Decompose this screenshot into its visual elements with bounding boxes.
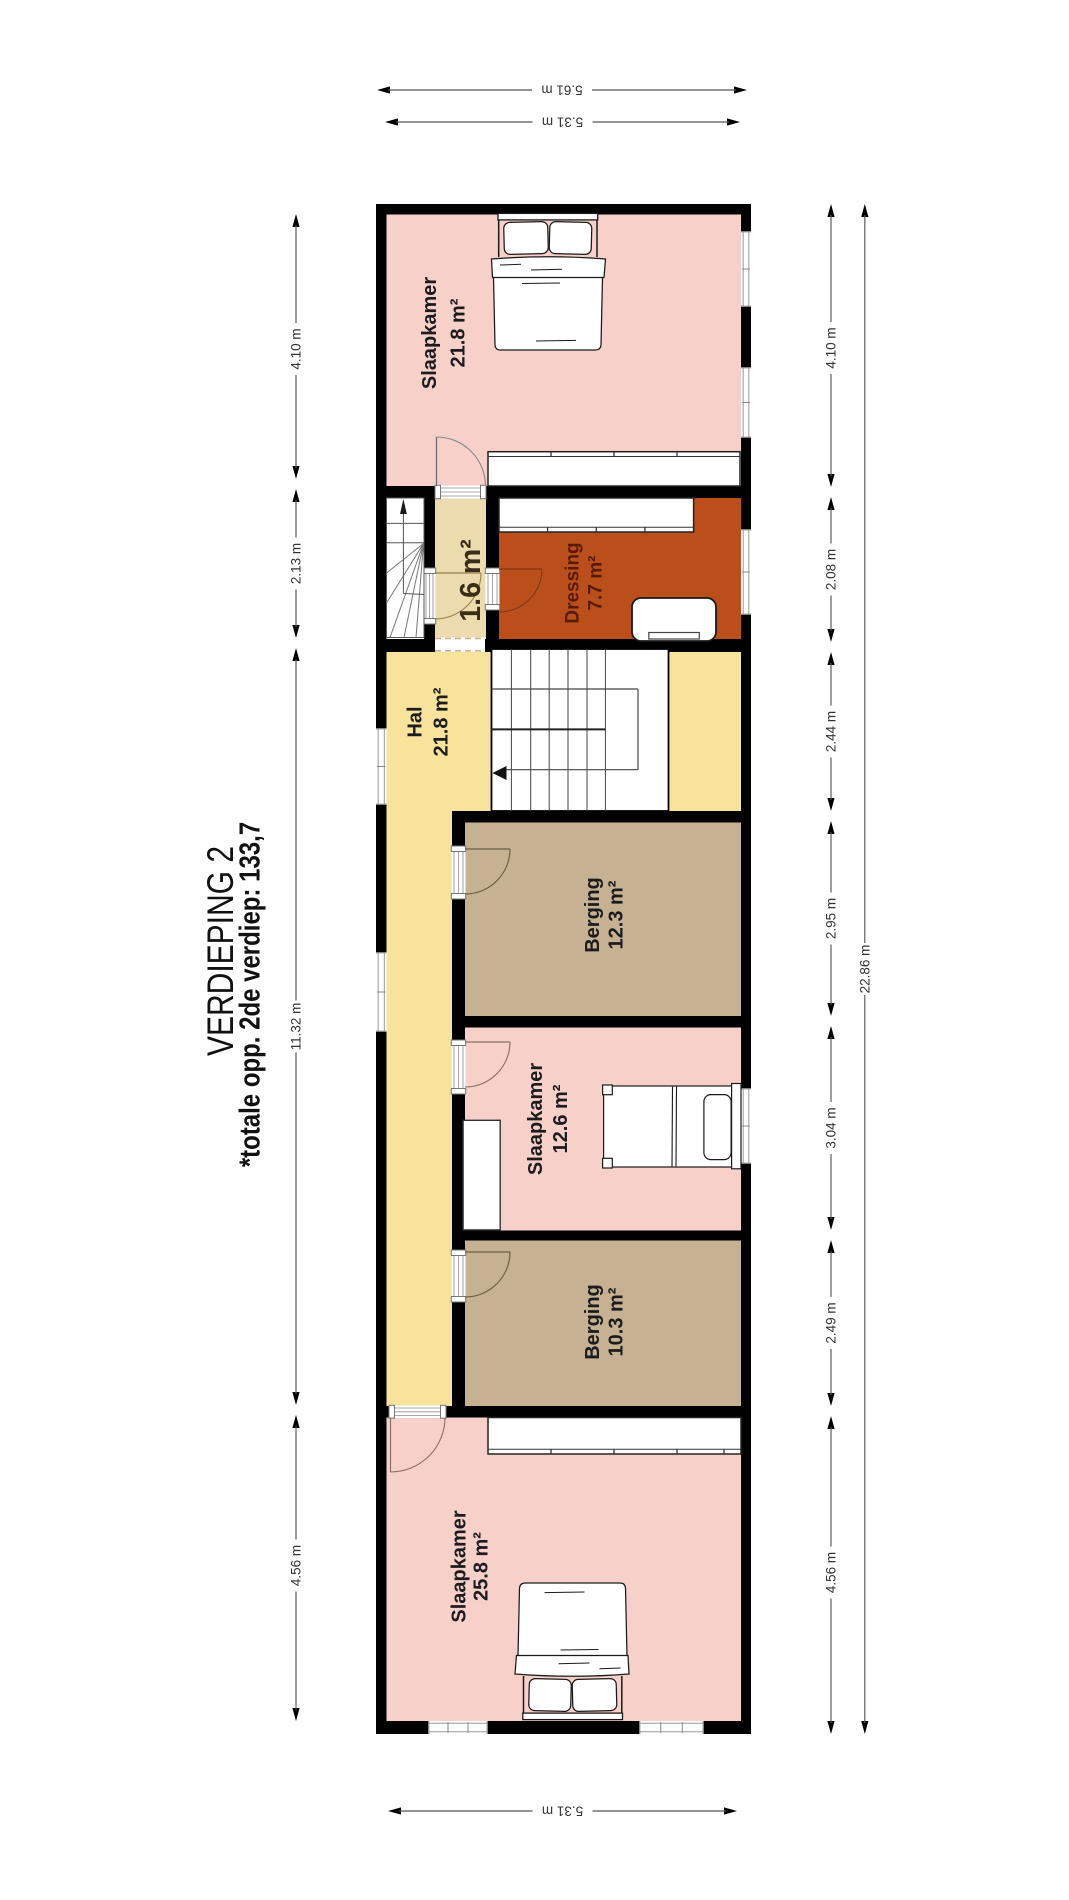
svg-text:2.95 m: 2.95 m [824, 898, 839, 939]
svg-text:7.7 m²: 7.7 m² [586, 556, 607, 611]
svg-text:11.32 m: 11.32 m [289, 1003, 304, 1051]
svg-text:12.6 m²: 12.6 m² [550, 1084, 572, 1153]
svg-text:Dressing: Dressing [563, 542, 584, 623]
svg-text:2.08 m: 2.08 m [824, 549, 839, 590]
svg-text:4.56 m: 4.56 m [289, 1545, 304, 1586]
svg-text:Hal: Hal [405, 706, 427, 737]
svg-text:3.04 m: 3.04 m [824, 1107, 839, 1148]
svg-text:Slaapkamer: Slaapkamer [525, 1063, 547, 1176]
svg-text:1.6 m²: 1.6 m² [455, 539, 487, 621]
svg-text:5.31 m: 5.31 m [542, 114, 583, 129]
svg-text:12.3 m²: 12.3 m² [606, 880, 628, 949]
svg-text:2.44 m: 2.44 m [824, 711, 839, 752]
svg-text:22.86 m: 22.86 m [858, 945, 873, 994]
svg-text:21.8 m²: 21.8 m² [448, 298, 470, 367]
svg-text:Berging: Berging [582, 1284, 604, 1360]
svg-text:*totale opp. 2de verdiep: 133,: *totale opp. 2de verdiep: 133,7 [233, 822, 266, 1167]
svg-text:Berging: Berging [582, 877, 604, 953]
svg-text:4.56 m: 4.56 m [824, 1552, 839, 1593]
svg-text:2.49 m: 2.49 m [824, 1302, 839, 1343]
svg-text:21.8 m²: 21.8 m² [430, 687, 452, 756]
svg-text:5.31 m: 5.31 m [542, 1803, 583, 1818]
svg-text:10.3 m²: 10.3 m² [606, 1287, 628, 1356]
svg-text:2.13 m: 2.13 m [289, 543, 304, 584]
svg-text:4.10 m: 4.10 m [289, 328, 304, 369]
svg-text:Slaapkamer: Slaapkamer [419, 277, 441, 390]
svg-text:5.61 m: 5.61 m [541, 82, 582, 97]
svg-text:25.8 m²: 25.8 m² [471, 1532, 493, 1601]
svg-text:4.10 m: 4.10 m [824, 327, 839, 368]
svg-text:Slaapkamer: Slaapkamer [448, 1510, 470, 1623]
